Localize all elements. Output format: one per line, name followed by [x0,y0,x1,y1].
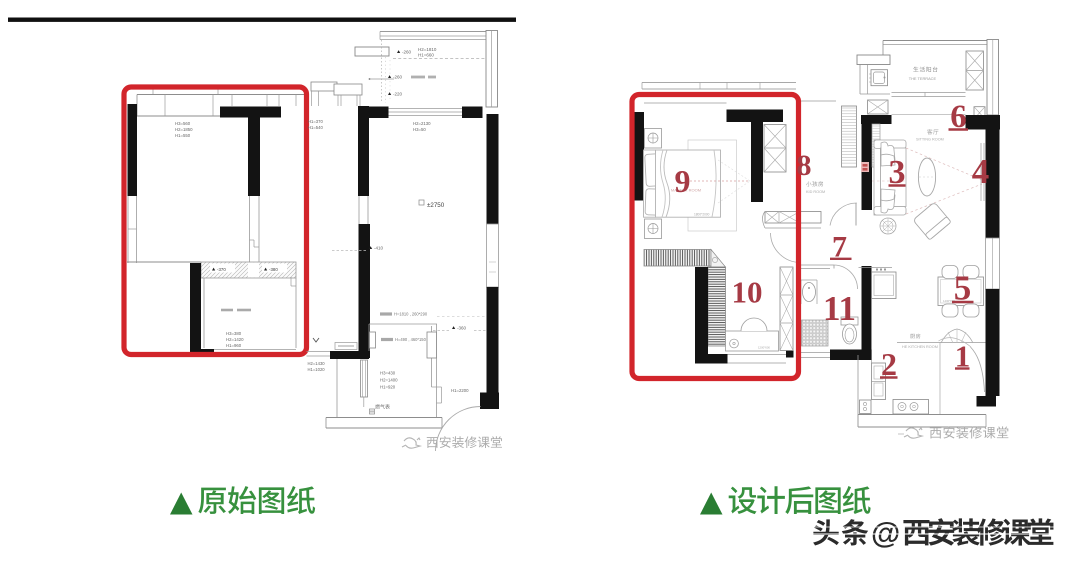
svg-text:H1=370: H1=370 [308,119,323,124]
svg-text:HE KITCHEN ROOM: HE KITCHEN ROOM [902,345,938,349]
svg-text:H2=1850: H2=1850 [175,127,193,132]
svg-text:H2=1400: H2=1400 [380,378,398,383]
svg-text:H3=560: H3=560 [175,121,191,126]
svg-text:H3=380: H3=380 [226,331,242,336]
svg-text:THE TERRACE: THE TERRACE [909,76,937,81]
svg-text:H1=660: H1=660 [418,53,434,58]
svg-text:-410: -410 [374,246,384,251]
svg-text:4: 4 [972,152,990,191]
svg-text:-260: -260 [402,50,412,55]
svg-text:H1=960: H1=960 [226,343,242,348]
svg-text:H3=430: H3=430 [380,371,396,376]
svg-text:H2=1810: H2=1810 [418,47,437,52]
svg-text:SITTING ROOM: SITTING ROOM [916,138,944,142]
svg-text:H1=540: H1=540 [308,125,323,130]
svg-text:H1=920: H1=920 [380,385,396,390]
svg-text:H=1810 , 260*290: H=1810 , 260*290 [394,312,428,317]
svg-text:-380: -380 [269,267,278,272]
svg-text:-260: -260 [393,75,403,80]
svg-text:±2750: ±2750 [427,202,445,209]
svg-text:KID ROOM: KID ROOM [806,190,825,194]
svg-text:-220: -220 [393,92,403,97]
svg-text:H2=1430: H2=1430 [308,361,326,366]
svg-text:H1=2200: H1=2200 [451,388,469,393]
svg-text:1800*2000: 1800*2000 [694,213,710,217]
svg-text:H=490 , 460*150: H=490 , 460*150 [395,337,427,342]
svg-text:11: 11 [823,289,856,328]
svg-text:H2=1420: H2=1420 [226,337,244,342]
svg-text:-370: -370 [217,267,226,272]
svg-text:H1=1020: H1=1020 [308,367,326,372]
svg-text:H3=50: H3=50 [413,127,426,132]
svg-text:9: 9 [675,163,691,199]
svg-text:H2=2130: H2=2130 [413,121,431,126]
svg-text:H1=550: H1=550 [175,133,191,138]
svg-text:8: 8 [797,149,812,182]
svg-text:10: 10 [732,275,763,310]
svg-text:-360: -360 [457,326,467,331]
svg-text:1200*600: 1200*600 [758,346,770,350]
